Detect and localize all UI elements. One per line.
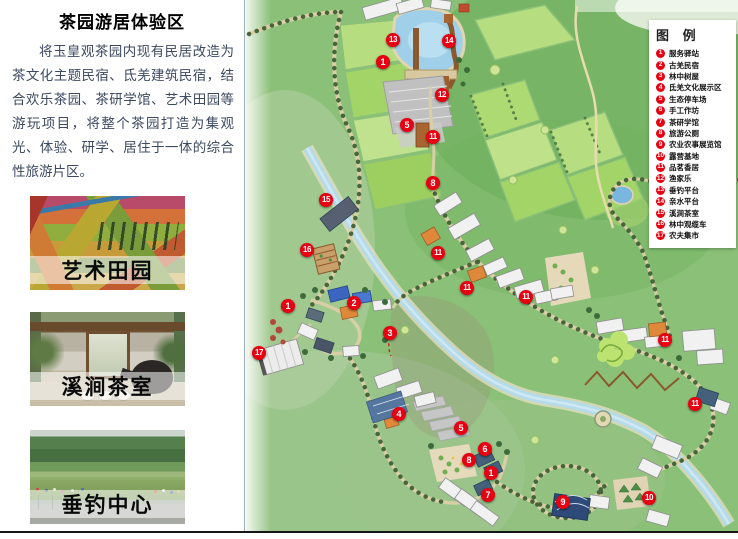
- legend-item-label: 茶研学馆: [669, 117, 699, 128]
- map-marker-3: 3: [383, 326, 397, 340]
- map-marker-11: 11: [426, 130, 440, 144]
- map-marker-5: 5: [454, 421, 468, 435]
- map-marker-16: 16: [300, 243, 314, 257]
- legend-item-label: 旅游公厕: [669, 128, 699, 139]
- map-marker-7: 7: [481, 488, 495, 502]
- legend-item-label: 林中树屋: [669, 71, 699, 82]
- legend-item: 2古羌民宿: [656, 59, 734, 70]
- legend-item-number: 14: [656, 197, 665, 206]
- map-marker-11: 11: [431, 246, 445, 260]
- legend-item-label: 溪涧茶室: [669, 208, 699, 219]
- legend-item-number: 6: [656, 106, 665, 115]
- legend-item-number: 10: [656, 152, 665, 161]
- legend-item: 7茶研学馆: [656, 116, 734, 127]
- legend-items: 1服务驿站2古羌民宿3林中树屋4氐羌文化展示区5生态停车场6手工作坊7茶研学馆8…: [656, 48, 734, 242]
- legend-item-label: 氐羌文化展示区: [669, 82, 722, 93]
- legend-item-label: 生态停车场: [669, 94, 707, 105]
- legend: 图 例 1服务驿站2古羌民宿3林中树屋4氐羌文化展示区5生态停车场6手工作坊7茶…: [649, 20, 736, 248]
- map-marker-15: 15: [319, 193, 333, 207]
- legend-item-label: 农夫集市: [669, 230, 699, 241]
- legend-item: 16林中观缆车: [656, 219, 734, 230]
- map-marker-8: 8: [462, 453, 476, 467]
- legend-item-number: 11: [656, 163, 665, 172]
- left-panel: 茶园游居体验区 将玉皇观茶园内现有民居改造为茶文化主题民宿、氐羌建筑民宿，结合欢…: [0, 0, 244, 531]
- legend-item-number: 16: [656, 220, 665, 229]
- fishing-pier: [413, 28, 419, 74]
- foliage-left: [30, 328, 64, 376]
- map-marker-8: 8: [426, 176, 440, 190]
- legend-title: 图 例: [656, 25, 734, 44]
- map-marker-11: 11: [658, 333, 672, 347]
- photo-label: 溪涧茶室: [30, 372, 185, 400]
- legend-item-number: 13: [656, 186, 665, 195]
- photo-fishing-center: 垂钓中心: [30, 430, 185, 524]
- legend-item: 14亲水平台: [656, 196, 734, 207]
- map-marker-11: 11: [519, 290, 533, 304]
- legend-item-label: 农业农事展览馆: [669, 139, 722, 150]
- legend-item: 10露营基地: [656, 151, 734, 162]
- map-marker-10: 10: [642, 491, 656, 505]
- legend-item-number: 3: [656, 72, 665, 81]
- red-hut: [459, 4, 469, 12]
- legend-item: 13垂钓平台: [656, 185, 734, 196]
- legend-item: 6手工作坊: [656, 105, 734, 116]
- photo-label: 垂钓中心: [30, 490, 185, 518]
- legend-item-label: 亲水平台: [669, 196, 699, 207]
- map-marker-14: 14: [442, 34, 456, 48]
- map-marker-12: 12: [435, 88, 449, 102]
- map-marker-13: 13: [386, 33, 400, 47]
- legend-item-number: 5: [656, 95, 665, 104]
- legend-item-label: 渔家乐: [669, 173, 692, 184]
- map-marker-11: 11: [460, 281, 474, 295]
- legend-item: 1服务驿站: [656, 48, 734, 59]
- legend-item-label: 古羌民宿: [669, 60, 699, 71]
- legend-item: 8旅游公厕: [656, 128, 734, 139]
- legend-item-label: 服务驿站: [669, 48, 699, 59]
- legend-item: 5生态停车场: [656, 94, 734, 105]
- legend-item-number: 17: [656, 231, 665, 240]
- map-marker-5: 5: [400, 118, 414, 132]
- legend-item-number: 12: [656, 174, 665, 183]
- legend-item-number: 7: [656, 118, 665, 127]
- legend-item-number: 15: [656, 209, 665, 218]
- photo-art-fields: 艺术田园: [30, 196, 185, 290]
- legend-item: 12渔家乐: [656, 173, 734, 184]
- legend-item: 9农业农事展览馆: [656, 139, 734, 150]
- bottom-rule: [0, 531, 738, 533]
- slide-canvas: 茶园游居体验区 将玉皇观茶园内现有民居改造为茶文化主题民宿、氐羌建筑民宿，结合欢…: [0, 0, 738, 539]
- legend-item: 3林中树屋: [656, 71, 734, 82]
- page-title: 茶园游居体验区: [6, 8, 238, 33]
- photo-stream-tearoom: 溪涧茶室: [30, 312, 185, 406]
- legend-item-number: 2: [656, 61, 665, 70]
- legend-item-number: 4: [656, 83, 665, 92]
- map-marker-4: 4: [392, 407, 406, 421]
- legend-item-number: 1: [656, 49, 665, 58]
- map-marker-17: 17: [252, 346, 266, 360]
- map-marker-1: 1: [281, 299, 295, 313]
- legend-item: 4氐羌文化展示区: [656, 82, 734, 93]
- intro-paragraph: 将玉皇观茶园内现有民居改造为茶文化主题民宿、氐羌建筑民宿，结合欢乐茶园、茶研学馆…: [12, 40, 234, 184]
- legend-item-number: 9: [656, 140, 665, 149]
- legend-item-label: 露营基地: [669, 151, 699, 162]
- legend-item-label: 手工作坊: [669, 105, 699, 116]
- map-marker-1: 1: [376, 55, 390, 69]
- map-marker-6: 6: [478, 442, 492, 456]
- pavilion-circle: [595, 411, 611, 427]
- map-marker-2: 2: [347, 296, 361, 310]
- map-marker-11: 11: [688, 397, 702, 411]
- legend-item: 11品茗香居: [656, 162, 734, 173]
- legend-item-label: 林中观缆车: [669, 219, 707, 230]
- photo-label: 艺术田园: [30, 256, 185, 284]
- legend-item: 15溪涧茶室: [656, 207, 734, 218]
- legend-item: 17农夫集市: [656, 230, 734, 241]
- legend-item-number: 8: [656, 129, 665, 138]
- legend-item-label: 垂钓平台: [669, 185, 699, 196]
- map-marker-9: 9: [556, 495, 570, 509]
- map: 图 例 1服务驿站2古羌民宿3林中树屋4氐羌文化展示区5生态停车场6手工作坊7茶…: [244, 0, 738, 531]
- map-marker-1: 1: [484, 466, 498, 480]
- legend-item-label: 品茗香居: [669, 162, 699, 173]
